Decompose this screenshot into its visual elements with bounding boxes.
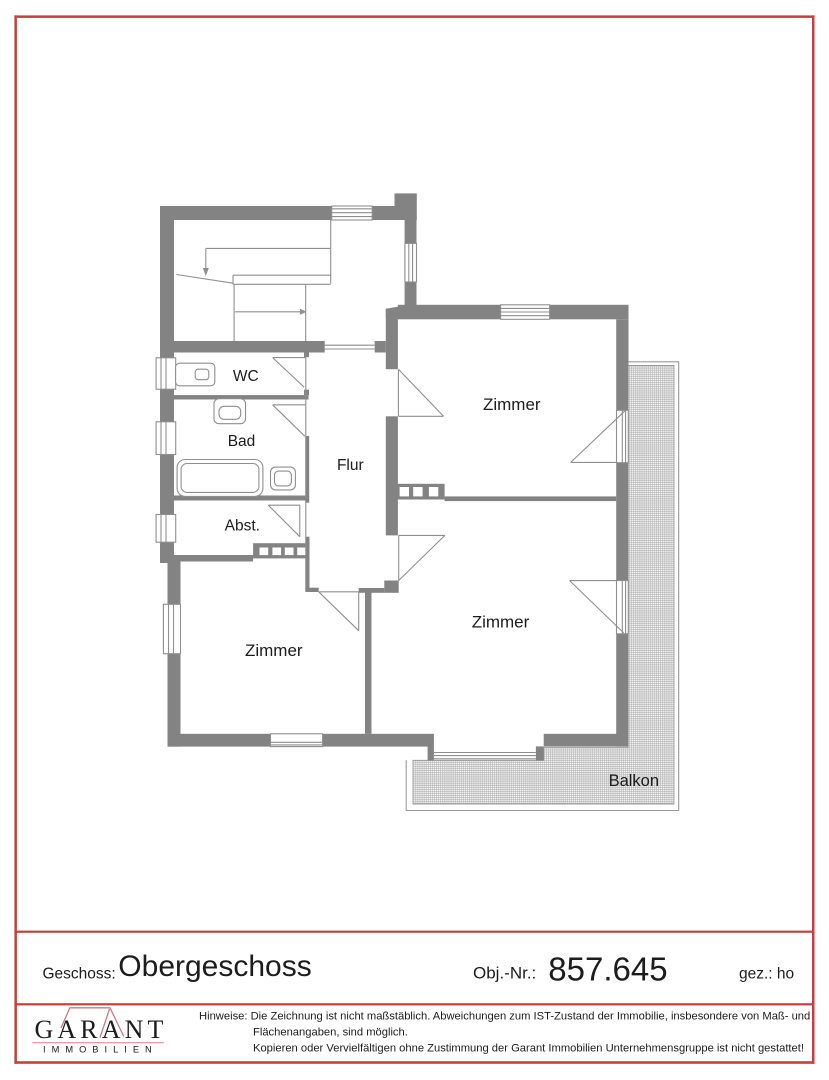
- svg-text:GARANT: GARANT: [35, 1015, 168, 1044]
- svg-text:Kopieren oder Vervielfältigen: Kopieren oder Vervielfältigen ohne Zusti…: [253, 1043, 804, 1055]
- svg-text:Zimmer: Zimmer: [472, 613, 530, 632]
- svg-text:Hinweise: Die Zeichnung ist ni: Hinweise: Die Zeichnung ist nicht maßstä…: [199, 1011, 810, 1023]
- svg-text:Geschoss:: Geschoss:: [43, 966, 116, 983]
- svg-text:Abst.: Abst.: [225, 518, 260, 535]
- svg-text:Obj.-Nr.:: Obj.-Nr.:: [473, 964, 536, 983]
- svg-text:Zimmer: Zimmer: [483, 395, 541, 414]
- svg-text:Obergeschoss: Obergeschoss: [118, 950, 311, 983]
- svg-text:Bad: Bad: [228, 433, 256, 450]
- svg-text:gez.: ho: gez.: ho: [739, 966, 794, 983]
- svg-text:857.645: 857.645: [548, 951, 667, 988]
- svg-text:Flächenangaben, sind möglich.: Flächenangaben, sind möglich.: [253, 1027, 408, 1039]
- svg-text:WC: WC: [233, 368, 259, 385]
- svg-text:Flur: Flur: [337, 457, 364, 474]
- svg-text:IMMOBILIEN: IMMOBILIEN: [43, 1045, 158, 1055]
- svg-text:Balkon: Balkon: [609, 772, 659, 790]
- svg-text:Zimmer: Zimmer: [245, 641, 303, 660]
